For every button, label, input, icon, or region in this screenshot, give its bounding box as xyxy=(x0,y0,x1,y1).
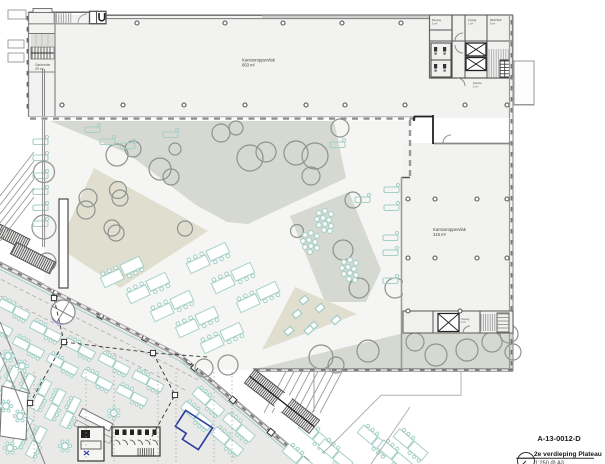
svg-text:663 m²: 663 m² xyxy=(242,63,256,68)
svg-text:29 m²: 29 m² xyxy=(35,67,45,71)
svg-text:1:250 @ A3: 1:250 @ A3 xyxy=(535,461,564,464)
svg-text:A-13-0012-D: A-13-0012-D xyxy=(537,434,581,443)
svg-text:1 m²: 1 m² xyxy=(468,21,473,25)
svg-text:Opslag: Opslag xyxy=(468,18,477,22)
svg-text:2e verdieping Plateau: 2e verdieping Plateau xyxy=(534,451,602,458)
svg-text:MEP/SER: MEP/SER xyxy=(490,18,502,22)
svg-text:8 m²: 8 m² xyxy=(490,22,495,26)
svg-text:Berging: Berging xyxy=(432,18,441,22)
svg-text:2 m²: 2 m² xyxy=(473,84,478,88)
svg-text:318 m²: 318 m² xyxy=(433,232,447,237)
svg-text:5 m²: 5 m² xyxy=(432,21,437,25)
svg-text:Dienste: Dienste xyxy=(473,81,482,85)
svg-text:4 m²: 4 m² xyxy=(461,321,466,324)
